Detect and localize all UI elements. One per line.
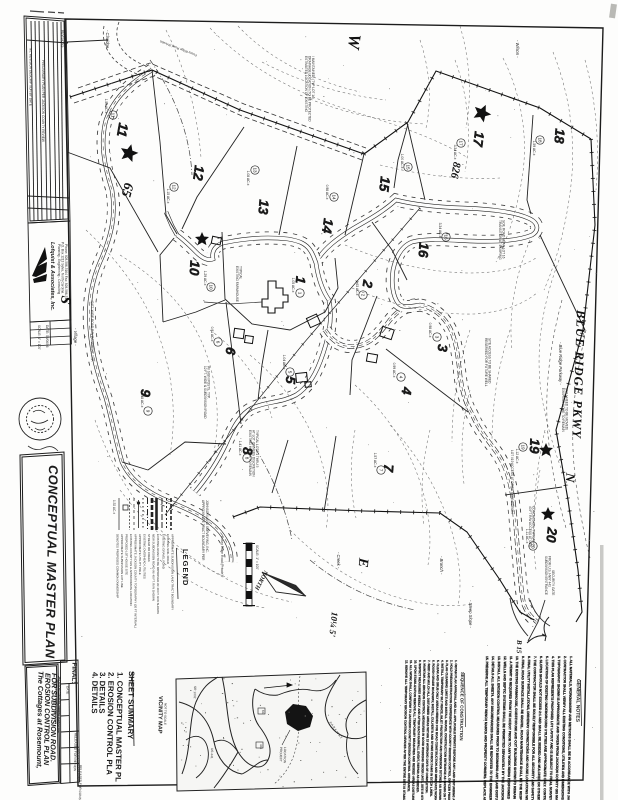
svg-text:1.52 AC.±: 1.52 AC.± — [112, 500, 116, 514]
svg-text:AT LOT OWNERS DISCRETION: AT LOT OWNERS DISCRETION — [252, 430, 256, 477]
svg-text:SHEET SUMMARY: SHEET SUMMARY — [126, 671, 136, 740]
svg-text:2: 2 — [360, 294, 365, 297]
svg-text:13: 13 — [255, 199, 271, 216]
svg-text:E: E — [355, 556, 371, 568]
svg-text:14: 14 — [331, 194, 336, 200]
svg-text:6: 6 — [215, 341, 220, 344]
svg-text:FROM U.S. HWY 441: FROM U.S. HWY 441 — [548, 556, 552, 587]
svg-text:441: 441 — [259, 744, 263, 750]
svg-text:19: 19 — [520, 444, 525, 450]
svg-text:1.59 AC.±: 1.59 AC.± — [532, 141, 536, 156]
svg-text:Phone: 828-586-5164 Fax: 828-: Phone: 828-586-5164 Fax: 828-586-5165 — [64, 244, 68, 303]
svg-text:JOHNSON LAND SURVEYING, INC.: JOHNSON LAND SURVEYING, INC. — [205, 500, 209, 553]
svg-text:SITE ACCESS TO BE SHARED: SITE ACCESS TO BE SHARED — [488, 338, 492, 384]
svg-text:1.15 AC.±: 1.15 AC.± — [166, 189, 170, 204]
svg-text:SCALE: 1" = 100': SCALE: 1" = 100' — [255, 545, 259, 570]
svg-text:CONCESSION, TYPICAL: CONCESSION, TYPICAL — [532, 506, 536, 543]
svg-text:RESERVED FOR FUTURE WELL: RESERVED FOR FUTURE WELL — [484, 338, 488, 387]
svg-text:SOIL ROAD NEAR LOT 16: SOIL ROAD NEAR LOT 16 — [502, 220, 506, 259]
svg-text:LEGEND: LEGEND — [181, 549, 190, 586]
svg-text:TYPICAL: TYPICAL — [239, 266, 243, 280]
svg-text:1.08 AC.±: 1.08 AC.± — [246, 171, 250, 186]
svg-text:APPROXIMATE JACKSON COUNTY TOP: APPROXIMATE JACKSON COUNTY TOPOGRAPHY (2… — [134, 534, 138, 628]
svg-text:US 441: US 441 — [210, 748, 214, 759]
svg-text:17: 17 — [458, 140, 463, 146]
svg-text:Lofquist & Associates, Inc.: Lofquist & Associates, Inc. — [49, 242, 55, 311]
svg-text:FINAL:: FINAL: — [70, 662, 77, 683]
svg-text:20: 20 — [543, 526, 560, 544]
svg-text:APPROXIMATE SUBDIVISION LOT LI: APPROXIMATE SUBDIVISION LOT LINE — [120, 534, 124, 588]
svg-text:(WILL NEED TO BE MOVED): (WILL NEED TO BE MOVED) — [565, 388, 569, 430]
svg-text:13: 13 — [252, 167, 257, 173]
svg-text:N: N — [563, 471, 579, 483]
svg-text:18: 18 — [551, 128, 567, 145]
svg-text:64: 64 — [261, 710, 265, 714]
svg-text:TRANSITION AT EXISTING: TRANSITION AT EXISTING — [498, 220, 502, 260]
svg-text:DRAINAGE LOCATION (TO BE PROTE: DRAINAGE LOCATION (TO BE PROTECTED — [308, 56, 312, 122]
svg-text:- Steep Slope -: - Steep Slope - — [468, 600, 473, 629]
svg-text:LOT #19 ACCESS AT DRIVE CONNEC: LOT #19 ACCESS AT DRIVE CONNECTION — [510, 450, 514, 514]
svg-text:PROJECT: PROJECT — [279, 747, 283, 762]
svg-text:EXISTING HOME TO REMAIN: EXISTING HOME TO REMAIN — [561, 388, 565, 433]
svg-text:SR 1002: SR 1002 — [193, 686, 197, 699]
svg-text:1: 1 — [293, 275, 309, 284]
svg-text:RELEASED FOR CONSTR: RELEASED FOR CONSTR — [78, 765, 83, 800]
svg-text:Posey Ridge Road (Private): Posey Ridge Road (Private) — [220, 536, 224, 576]
svg-text:EXISTING GRAVEL ROAD: EXISTING GRAVEL ROAD — [162, 534, 166, 569]
svg-text:- Village -: - Village - — [73, 328, 78, 346]
svg-text:40 FT R/W ACCESS AT DEV.: 40 FT R/W ACCESS AT DEV. — [528, 506, 532, 548]
svg-text:3.34 AC.±: 3.34 AC.± — [453, 145, 457, 160]
svg-text:B 15: B 15 — [515, 639, 524, 654]
svg-text:W/ SIGN POSTS, TYP.: W/ SIGN POSTS, TYP. — [207, 366, 211, 399]
svg-text:5: 5 — [287, 371, 292, 374]
svg-text:40 FT. WIDE ROAD R/W EASEMENT,: 40 FT. WIDE ROAD R/W EASEMENT, TYP. — [90, 300, 94, 362]
svg-text:EXISTING OVERHEAD UTILITIES: EXISTING OVERHEAD UTILITIES — [143, 534, 147, 579]
svg-text:15: 15 — [376, 176, 393, 193]
svg-text:4. DETAILS: 4. DETAILS — [90, 672, 100, 714]
svg-text:1.12 AC.±: 1.12 AC.± — [515, 449, 519, 464]
svg-text:0.99 AC.±: 0.99 AC.± — [392, 363, 396, 378]
svg-text:9: 9 — [145, 410, 150, 413]
svg-text:- Blue Ridge Parkway -: - Blue Ridge Parkway - — [558, 342, 563, 385]
svg-text:11: 11 — [110, 113, 115, 118]
svg-text:16: 16 — [443, 234, 448, 240]
svg-text:3: 3 — [434, 336, 439, 339]
svg-text:16: 16 — [415, 242, 431, 259]
svg-text:1.00 AC.±: 1.00 AC.± — [400, 154, 404, 169]
svg-text:VICINITY MAP: VICINITY MAP — [156, 696, 163, 734]
svg-text:10: 10 — [186, 260, 202, 277]
svg-text:P.O. Box 1213 Sylva, North Ca: P.O. Box 1213 Sylva, North Carolina — [61, 242, 65, 294]
svg-text:NOT TO SCALE: NOT TO SCALE — [163, 703, 167, 725]
svg-text:- Wilson -: - Wilson - — [515, 40, 520, 58]
svg-text:0.63 AC.±: 0.63 AC.± — [355, 281, 359, 296]
svg-text:NEW SUBDIVISION ROAD W/ 40 FT.: NEW SUBDIVISION ROAD W/ 40 FT. R/W SHOWN — [152, 534, 156, 601]
svg-text:APPROXIMATE TRACT BOUNDARY PER: APPROXIMATE TRACT BOUNDARY PER — [201, 500, 205, 561]
svg-text:EXISTING ROAD TO BE IMPROVED W: EXISTING ROAD TO BE IMPROVED W/ 40 FT. R… — [156, 534, 160, 614]
svg-text:LOCATION: LOCATION — [283, 747, 287, 764]
svg-text:SUBDIVISION ENTRANCE: SUBDIVISION ENTRANCE — [544, 556, 548, 595]
svg-text:PRELIMINARY PLAN PER JACKSON C: PRELIMINARY PLAN PER JACKSON COUNTY REVI… — [41, 60, 45, 142]
svg-text:PROPOSED LOT HOUSE SITE: PROPOSED LOT HOUSE SITE — [125, 534, 129, 575]
svg-text:APPROXIMATE SUBDIVISION LAND T: APPROXIMATE SUBDIVISION LAND TRACT BOUND… — [171, 534, 175, 610]
svg-text:EXISTING COUNTY GIS & APPROXIM: EXISTING COUNTY GIS & APPROXIMATE LOCATI… — [129, 534, 133, 606]
svg-text:DENOTES PROPOSED COMMON OWNERS: DENOTES PROPOSED COMMON OWNERSHIP — [116, 534, 120, 598]
svg-text:12 FT. WIDE & SUBDIVISION ROAD: 12 FT. WIDE & SUBDIVISION ROAD — [203, 366, 207, 419]
svg-text:TYPICAL LOTS 1 THRU 5: TYPICAL LOTS 1 THRU 5 — [255, 430, 259, 468]
svg-text:15: 15 — [405, 164, 410, 170]
svg-text:1.50 AC.±: 1.50 AC.± — [104, 99, 108, 114]
svg-text:EXISTING HOMES TO REMAIN: EXISTING HOMES TO REMAIN — [248, 430, 252, 477]
svg-text:- Creek -: - Creek - — [336, 552, 341, 569]
svg-text:1.04 AC.±: 1.04 AC.± — [282, 355, 286, 370]
svg-text:0.91 AC.±: 0.91 AC.± — [210, 327, 214, 342]
svg-text:- Claridge -: - Claridge - — [105, 30, 110, 51]
svg-text:STREAM OR CREEK: STREAM OR CREEK — [147, 534, 151, 562]
svg-text:1: 1 — [297, 292, 302, 295]
svg-text:1.57 AC.±: 1.57 AC.± — [373, 453, 377, 468]
svg-text:REVISIONS: REVISIONS — [61, 30, 65, 47]
svg-text:No. REVISION DESCRIPTION BY: No. REVISION DESCRIPTION BY DATE — [29, 48, 33, 106]
svg-text:EXISTING SOIL ROAD: EXISTING SOIL ROAD — [166, 534, 170, 564]
svg-text:14: 14 — [319, 217, 336, 234]
svg-text:10: 10 — [208, 284, 213, 290]
svg-text:DATE: DATE — [65, 686, 69, 694]
svg-text:0.98 AC.±: 0.98 AC.± — [325, 185, 329, 200]
svg-text:12: 12 — [190, 165, 207, 182]
svg-text:12: 12 — [171, 184, 176, 190]
svg-text:0.98 AC.±: 0.98 AC.± — [428, 323, 432, 338]
svg-text:SCALE: 1" = 100': SCALE: 1" = 100' — [37, 325, 41, 350]
svg-text:EXISTING FARMHOUSE: EXISTING FARMHOUSE — [235, 266, 239, 302]
svg-text:SECURITY GATE: SECURITY GATE — [551, 570, 555, 595]
svg-text:11: 11 — [114, 122, 131, 138]
svg-text:APPROXIMATE UTILITY POLE: APPROXIMATE UTILITY POLE — [138, 534, 142, 575]
svg-text:18: 18 — [537, 137, 542, 143]
svg-text:GENERAL NOTES: GENERAL NOTES — [574, 679, 581, 723]
svg-text:Planning - Engineering - C: Planning - Engineering - Consulting — [57, 244, 61, 294]
svg-text:DATE: 03/06/06: DATE: 03/06/06 — [45, 325, 49, 348]
svg-text:3.34 AC.±: 3.34 AC.± — [438, 223, 442, 238]
svg-text:1.29 AC.±: 1.29 AC.± — [203, 271, 207, 286]
svg-text:4: 4 — [398, 376, 403, 379]
svg-text:/ MAINTAINED) (TYP LOT 14): / MAINTAINED) (TYP LOT 14) — [311, 56, 315, 99]
svg-text:- Branch -: - Branch - — [439, 556, 444, 575]
svg-text:ESTIMATED LOCATION OF EXISTING: ESTIMATED LOCATION OF EXISTING — [304, 56, 308, 113]
svg-text:19: 19 — [527, 438, 543, 454]
